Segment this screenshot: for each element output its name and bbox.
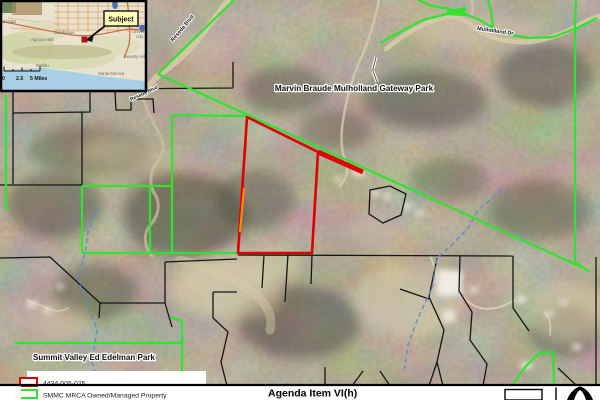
city-label-thousand-oaks: Thousand Oaks [0,19,16,24]
legend-swatch-mrca [20,390,37,398]
city-label-universal-2: City [136,34,144,39]
map-canvas: Marvin Braude Mulholland Gateway Park Su… [0,0,600,400]
inset-map: Thousand Oaks Calabasas Agoura Hills Mal… [0,0,150,91]
city-label-beverly-hills: Beverly Hills [124,54,148,59]
subject-location-dot [82,37,87,42]
city-label-agoura-hills: Agoura Hills [31,37,54,42]
footer-scale-box [505,390,542,400]
park-label-north: Marvin Braude Mulholland Gateway Park [275,84,434,93]
highway-shield-icon [112,1,118,9]
legend-label-mrca: SMMC MRCA Owned/Managed Property [43,393,167,400]
scale-label-end: 5 Miles [30,76,47,82]
city-label-malibu: Malibu [36,63,49,68]
scale-label-mid: 2.5 [16,76,23,82]
map-document: Marvin Braude Mulholland Gateway Park Su… [0,0,600,400]
subject-callout-label: Subject [108,17,134,24]
park-label-south: Summit Valley Ed Edelman Park [33,353,155,362]
scale-label-0: 0 [2,76,5,82]
city-label-calabasas: Calabasas [54,30,74,35]
agenda-item-label: Agenda Item VI(h) [268,388,357,400]
city-label-santa-monica: Santa Monica [98,71,125,76]
footer-strip-left [0,386,21,400]
